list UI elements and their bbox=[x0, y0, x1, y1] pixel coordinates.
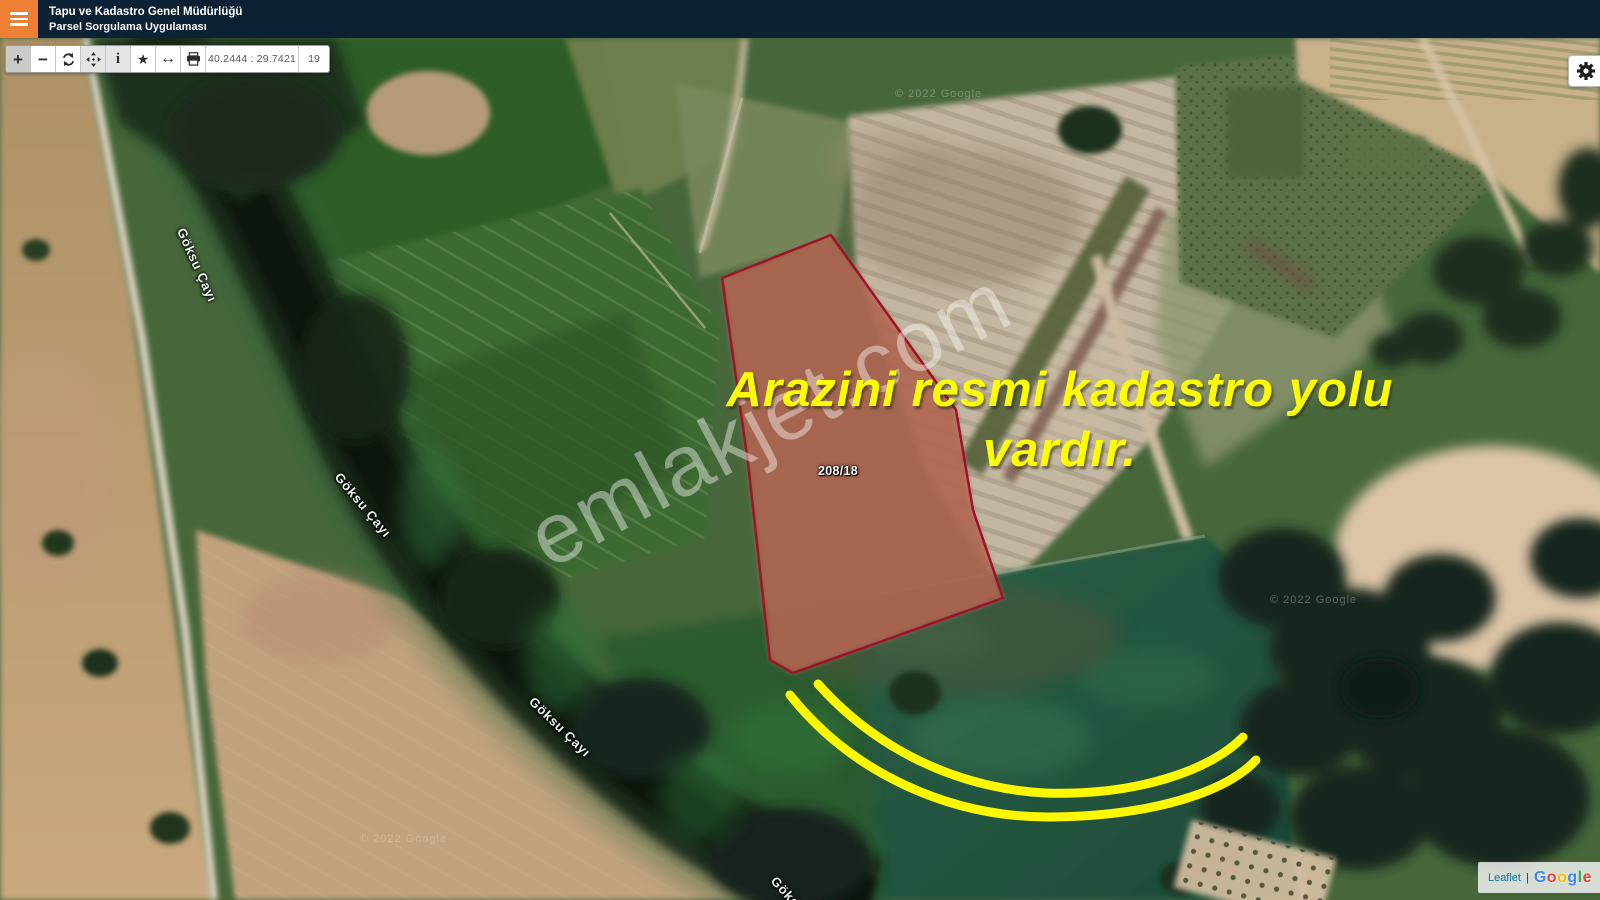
left-right-arrow-icon: ↔ bbox=[160, 51, 176, 67]
zoom-level-display: 19 bbox=[299, 46, 329, 72]
printer-icon bbox=[186, 52, 201, 66]
road-highlight-lines bbox=[790, 684, 1256, 817]
hamburger-icon bbox=[10, 12, 28, 15]
info-icon: i bbox=[116, 52, 120, 67]
map-toolbar: + − i ★ ↔ bbox=[5, 45, 330, 73]
annotation-note: Arazini resmi kadastro yolu vardır. bbox=[687, 360, 1433, 480]
google-logo[interactable]: Google bbox=[1534, 869, 1592, 887]
imagery-credit-2: © 2022 Google bbox=[1270, 594, 1357, 606]
measure-button[interactable]: ↔ bbox=[156, 46, 181, 72]
zoom-out-button[interactable]: − bbox=[31, 46, 56, 72]
star-icon: ★ bbox=[137, 52, 150, 66]
gear-icon bbox=[1576, 61, 1596, 81]
settings-button[interactable] bbox=[1568, 55, 1600, 87]
app-title-line2: Parsel Sorgulama Uygulaması bbox=[49, 20, 242, 34]
coordinates-display: 40.2444 : 29.7421 bbox=[206, 46, 299, 72]
imagery-credit-1: © 2022 Google bbox=[895, 88, 982, 100]
attribution-separator: | bbox=[1526, 872, 1529, 884]
app-header: Tapu ve Kadastro Genel Müdürlüğü Parsel … bbox=[0, 0, 1600, 38]
map-attribution: Leaflet | Google bbox=[1478, 862, 1600, 893]
annotation-note-line2: vardır. bbox=[687, 420, 1433, 480]
plus-icon: + bbox=[13, 51, 23, 68]
pan-button[interactable] bbox=[81, 46, 106, 72]
hamburger-menu-button[interactable] bbox=[0, 0, 38, 38]
info-button[interactable]: i bbox=[106, 46, 131, 72]
annotation-note-line1: Arazini resmi kadastro yolu bbox=[687, 360, 1433, 420]
app-title: Tapu ve Kadastro Genel Müdürlüğü Parsel … bbox=[49, 0, 242, 38]
satellite-map[interactable]: Göksu Çayı Göksu Çayı Göksu Çayı Göksu Ç… bbox=[0, 38, 1600, 900]
leaflet-link[interactable]: Leaflet bbox=[1488, 872, 1521, 884]
imagery-credit-3: © 2022 Google bbox=[360, 833, 447, 845]
zoom-in-button[interactable]: + bbox=[6, 46, 31, 72]
print-button[interactable] bbox=[181, 46, 206, 72]
refresh-icon bbox=[61, 52, 76, 67]
favorites-button[interactable]: ★ bbox=[131, 46, 156, 72]
app-title-line1: Tapu ve Kadastro Genel Müdürlüğü bbox=[49, 5, 242, 20]
parcel-query-app: Tapu ve Kadastro Genel Müdürlüğü Parsel … bbox=[0, 0, 1600, 900]
pan-move-icon bbox=[86, 52, 101, 67]
refresh-button[interactable] bbox=[56, 46, 81, 72]
minus-icon: − bbox=[38, 51, 48, 68]
